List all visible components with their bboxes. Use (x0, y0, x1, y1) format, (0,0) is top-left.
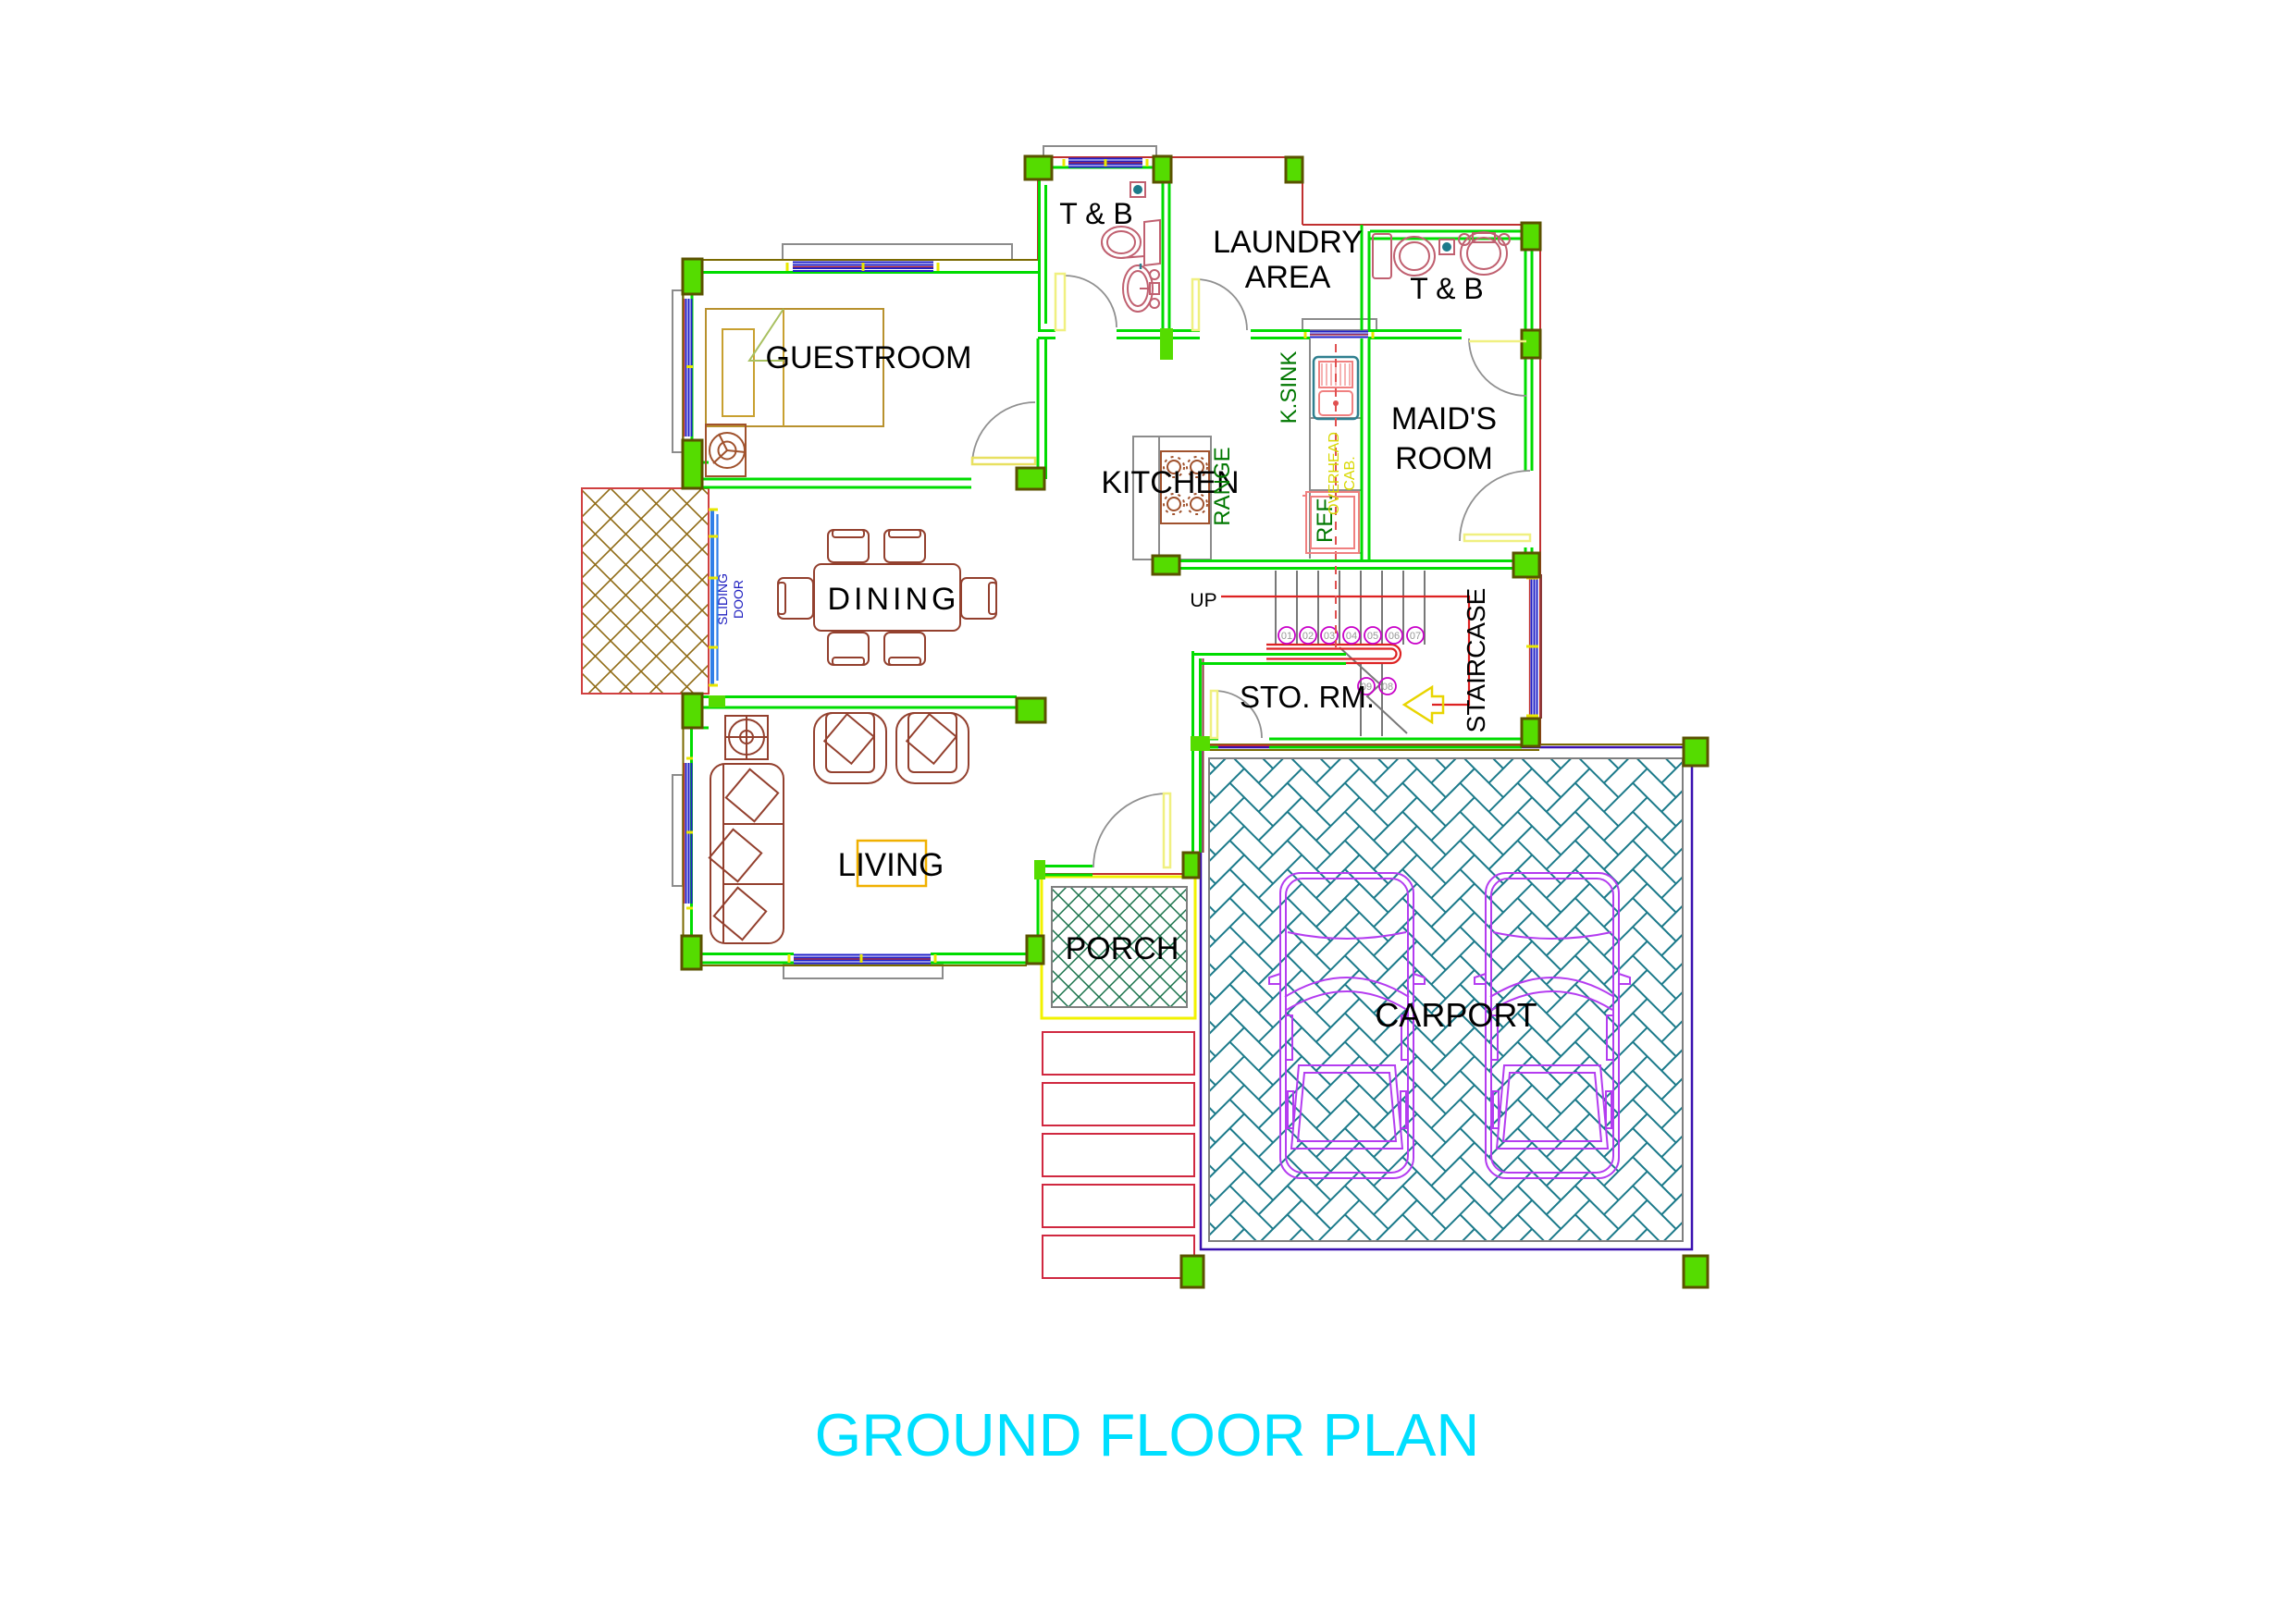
svg-text:01: 01 (1281, 631, 1292, 642)
svg-text:OVERHEAD: OVERHEAD (1327, 432, 1342, 515)
svg-text:02: 02 (1302, 631, 1314, 642)
svg-text:ROOM: ROOM (1395, 441, 1493, 476)
svg-text:SLIDING: SLIDING (715, 573, 730, 625)
svg-text:GUESTROOM: GUESTROOM (766, 340, 972, 375)
svg-text:07: 07 (1410, 631, 1421, 642)
svg-text:MAID'S: MAID'S (1391, 401, 1497, 436)
svg-text:LAUNDRY: LAUNDRY (1213, 225, 1363, 260)
svg-text:03: 03 (1324, 631, 1335, 642)
svg-text:CARPORT: CARPORT (1375, 996, 1537, 1034)
svg-text:06: 06 (1389, 631, 1400, 642)
svg-text:GROUND FLOOR PLAN: GROUND FLOOR PLAN (815, 1401, 1480, 1469)
svg-text:04: 04 (1346, 631, 1357, 642)
svg-text:T & B: T & B (1059, 197, 1132, 230)
svg-text:DOOR: DOOR (731, 580, 746, 619)
svg-text:08: 08 (1382, 682, 1393, 693)
svg-text:K.SINK: K.SINK (1277, 351, 1302, 424)
svg-text:T & B: T & B (1410, 272, 1483, 305)
svg-text:PORCH: PORCH (1066, 931, 1179, 966)
svg-text:STO. RM.: STO. RM. (1240, 680, 1375, 714)
svg-text:RANGE: RANGE (1210, 447, 1235, 525)
svg-text:AREA: AREA (1245, 260, 1331, 295)
svg-text:STAIRCASE: STAIRCASE (1462, 588, 1490, 733)
svg-text:05: 05 (1367, 631, 1378, 642)
svg-text:UP: UP (1190, 590, 1216, 611)
svg-text:DINING: DINING (828, 582, 960, 617)
svg-text:LIVING: LIVING (838, 847, 944, 883)
svg-text:CAB.: CAB. (1342, 456, 1358, 490)
